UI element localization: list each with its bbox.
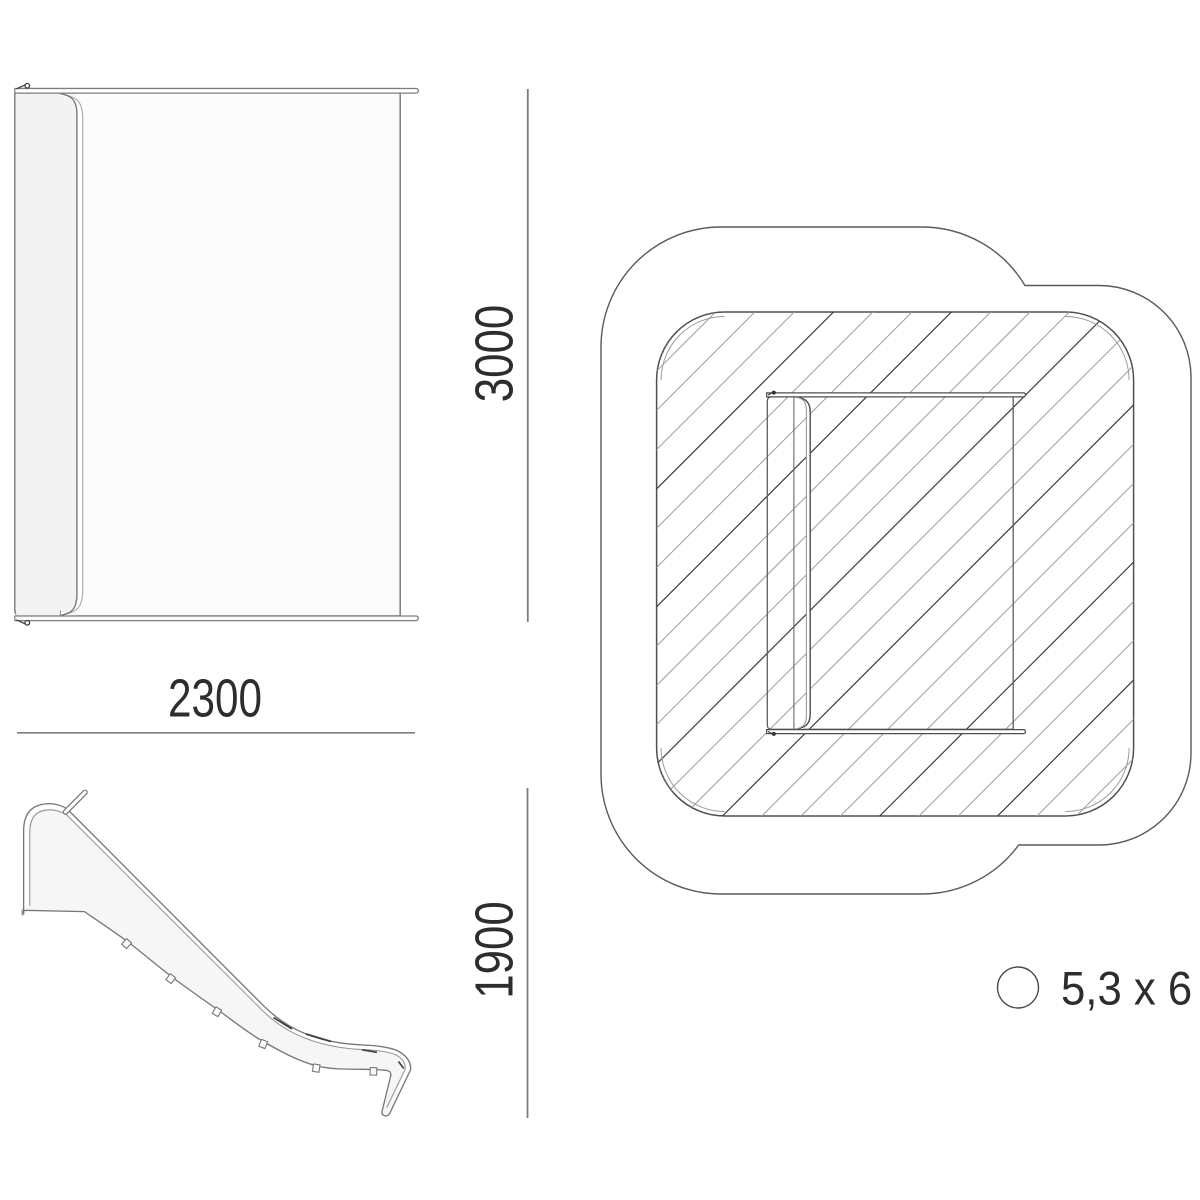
svg-text:3000: 3000 <box>465 305 524 403</box>
svg-text:2300: 2300 <box>168 669 262 729</box>
svg-text:1900: 1900 <box>465 901 524 999</box>
svg-text:5,3 x 6: 5,3 x 6 <box>1061 962 1192 1015</box>
